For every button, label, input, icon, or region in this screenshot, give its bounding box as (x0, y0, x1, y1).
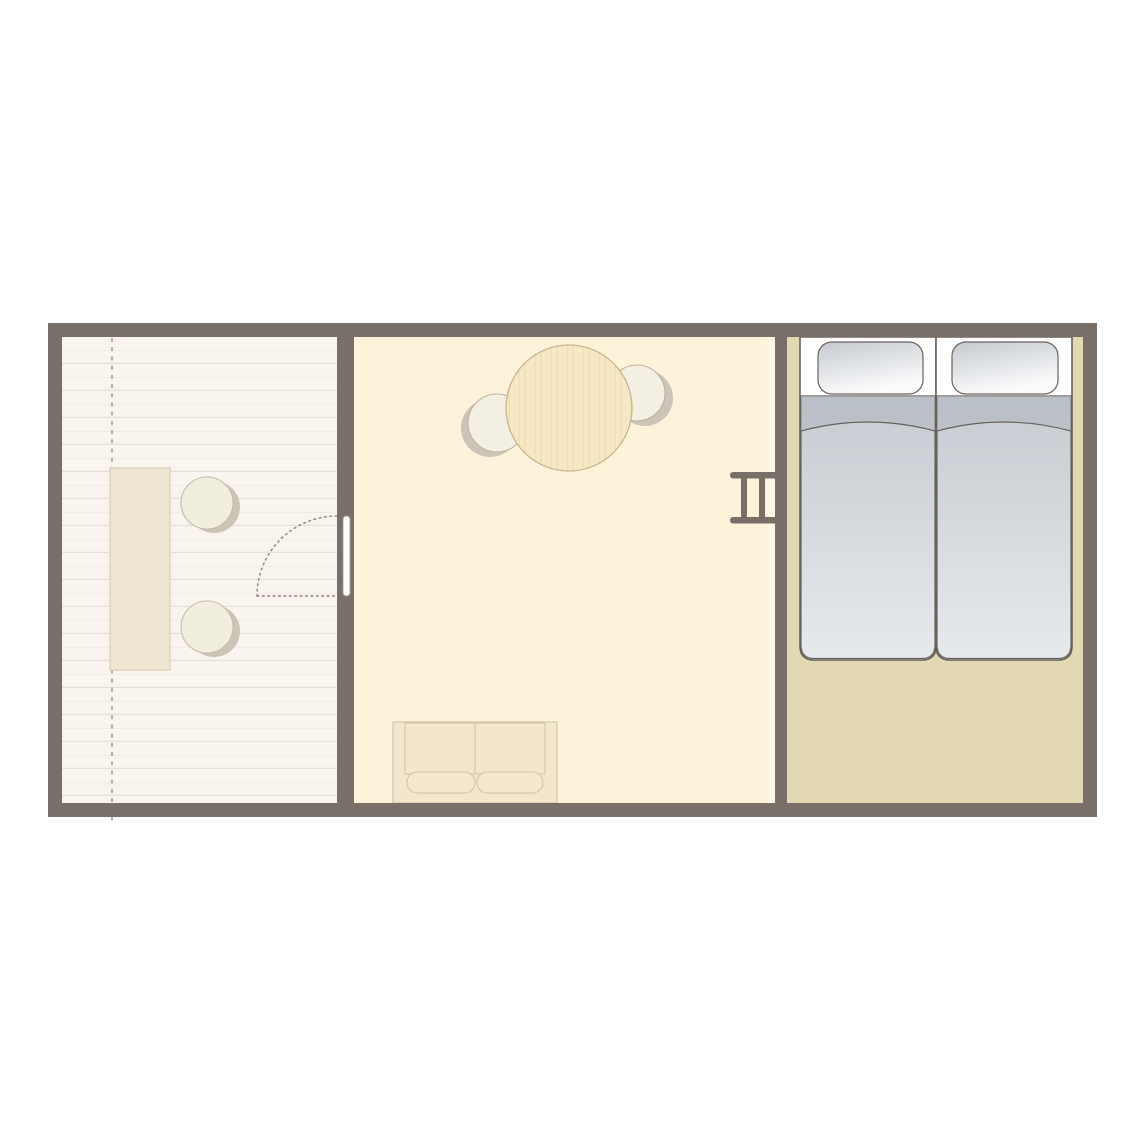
ladder-rung (759, 472, 765, 523)
wall-right (1083, 323, 1097, 817)
ladder-rail-bottom (730, 517, 778, 524)
terrace-deck-planks (62, 337, 337, 803)
ladder-rung (741, 472, 747, 523)
ladder-rail-top (730, 472, 778, 479)
sofa-seat-cushion (407, 772, 475, 793)
round-dining-table (506, 345, 632, 471)
wall-left (48, 323, 62, 817)
sofa-seat-cushion (477, 772, 543, 793)
terrace-table (110, 468, 170, 670)
floor-plan-drawing (0, 0, 1145, 1145)
bed-right (936, 337, 1072, 660)
wall-top (48, 323, 1097, 337)
door-leaf (343, 516, 350, 596)
duvet (937, 396, 1071, 659)
sofa (393, 722, 557, 803)
pillow (818, 342, 923, 394)
living-room-wall-highlight (767, 337, 775, 803)
wall-living-bedroom (775, 337, 787, 803)
duvet (801, 396, 935, 659)
bed-left (800, 337, 936, 660)
floor-plan-canvas (0, 0, 1145, 1145)
terrace-stool (181, 477, 233, 529)
pillow (952, 342, 1058, 394)
wall-bottom (48, 803, 1097, 817)
terrace-stool (181, 601, 233, 653)
